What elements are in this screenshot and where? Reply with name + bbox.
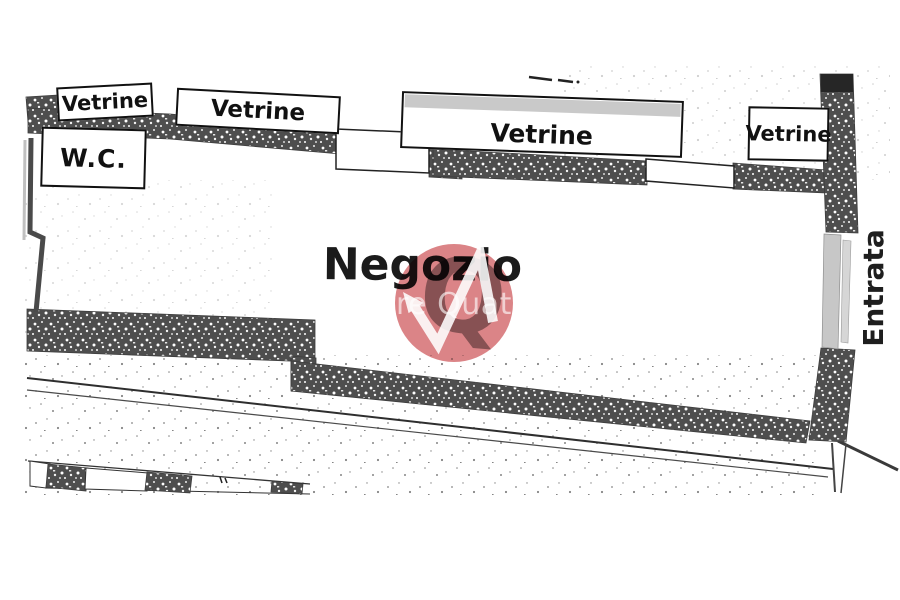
wall-right-tail	[832, 443, 846, 493]
room-label-negozio: Negozio	[305, 239, 540, 292]
street-line-right	[838, 441, 898, 470]
entrance-door	[822, 234, 851, 349]
vetrine-box-4: Vetrine	[748, 106, 830, 161]
wc-label: W.C.	[60, 143, 128, 174]
entrance-door-leaf-1	[822, 234, 841, 349]
entrance-label: Entrata	[858, 228, 890, 348]
vetrine-label-4: Vetrine	[745, 121, 832, 146]
entrance-door-leaf-2	[841, 240, 851, 343]
scanned-floor-plan: Vetrine Vetrine Vetrine Vetrine W.C. Neg…	[0, 0, 900, 600]
vetrine-box-3: Vetrine	[400, 91, 684, 158]
vetrine-label-3: Vetrine	[490, 118, 593, 151]
vetrine-box-1: Vetrine	[56, 83, 154, 122]
vetrine-label-2: Vetrine	[210, 96, 306, 127]
fragment-wall-1	[46, 464, 88, 491]
vetrine-label-1: Vetrine	[61, 88, 148, 116]
wall-right-cap	[821, 74, 853, 92]
wc-room: W.C.	[40, 127, 147, 190]
fragment-wall-2	[145, 472, 192, 493]
